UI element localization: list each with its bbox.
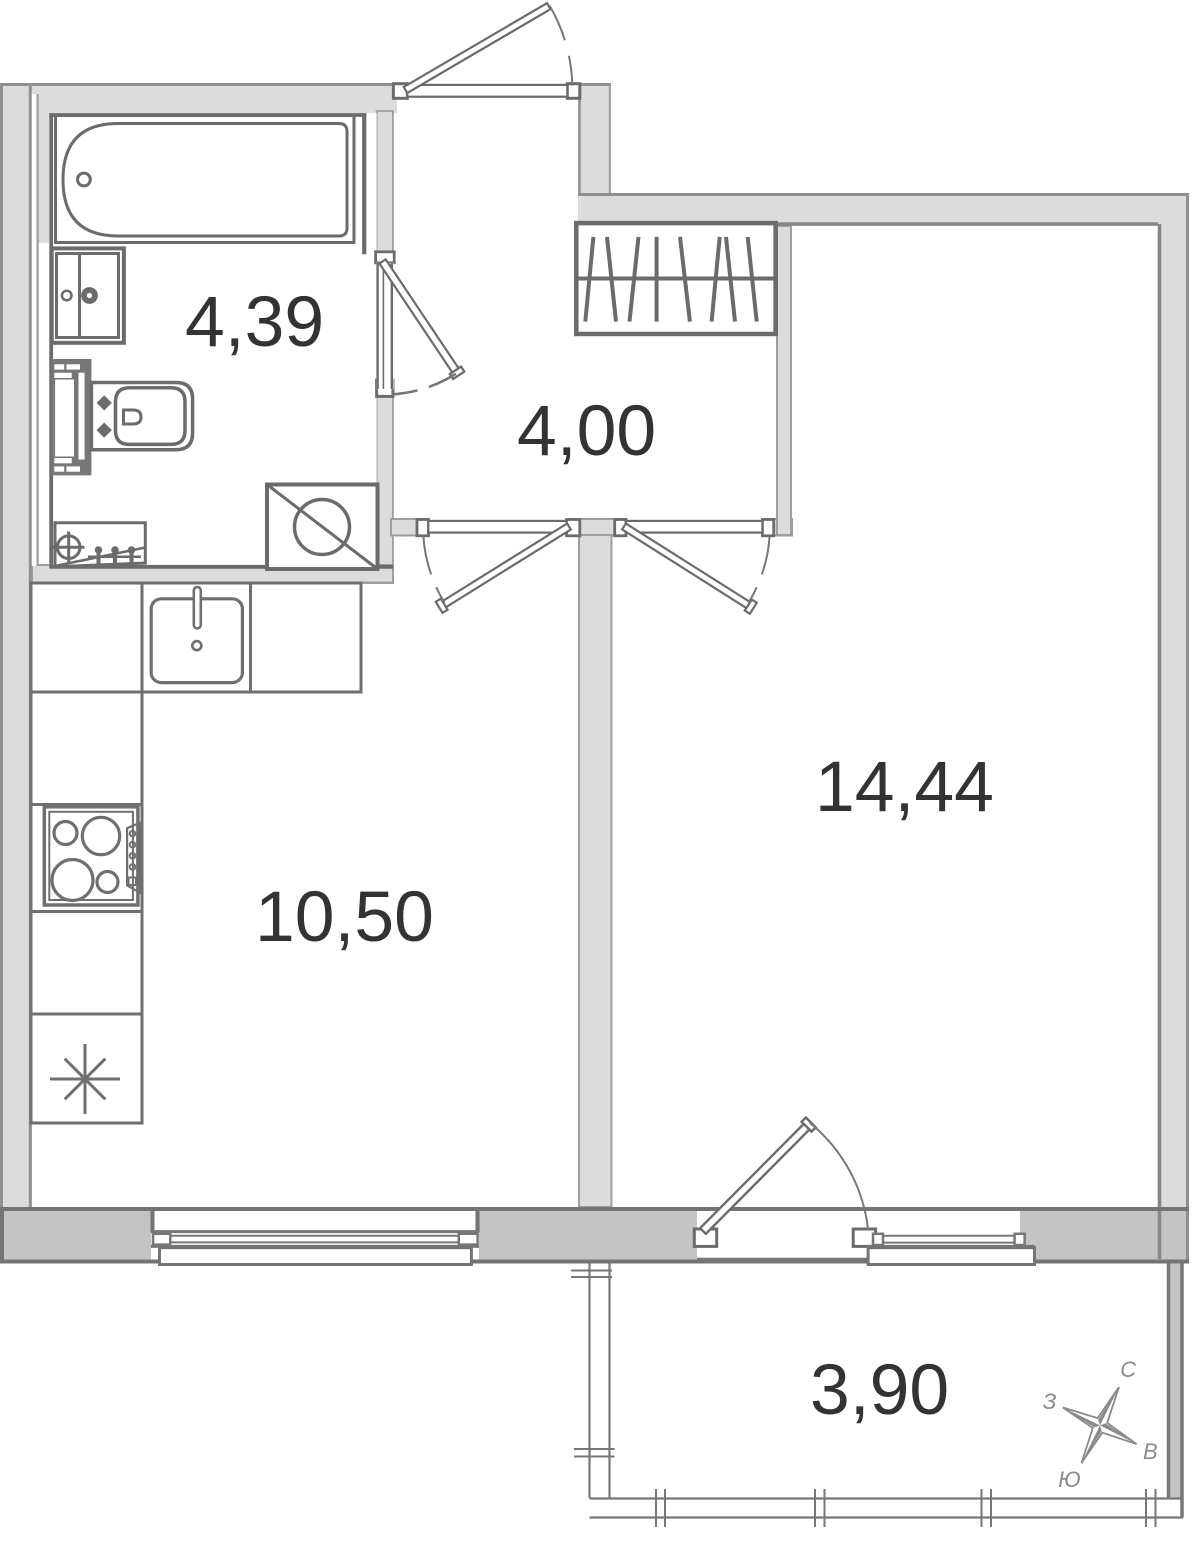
- svg-text:3,90: 3,90: [810, 1350, 949, 1430]
- svg-text:Ю: Ю: [1058, 1467, 1081, 1492]
- svg-text:4,00: 4,00: [517, 391, 656, 471]
- svg-text:С: С: [1120, 1357, 1136, 1382]
- svg-text:З: З: [1043, 1389, 1057, 1414]
- svg-text:В: В: [1143, 1439, 1158, 1464]
- svg-text:14,44: 14,44: [815, 747, 994, 827]
- svg-text:4,39: 4,39: [185, 282, 324, 362]
- svg-text:10,50: 10,50: [255, 877, 434, 957]
